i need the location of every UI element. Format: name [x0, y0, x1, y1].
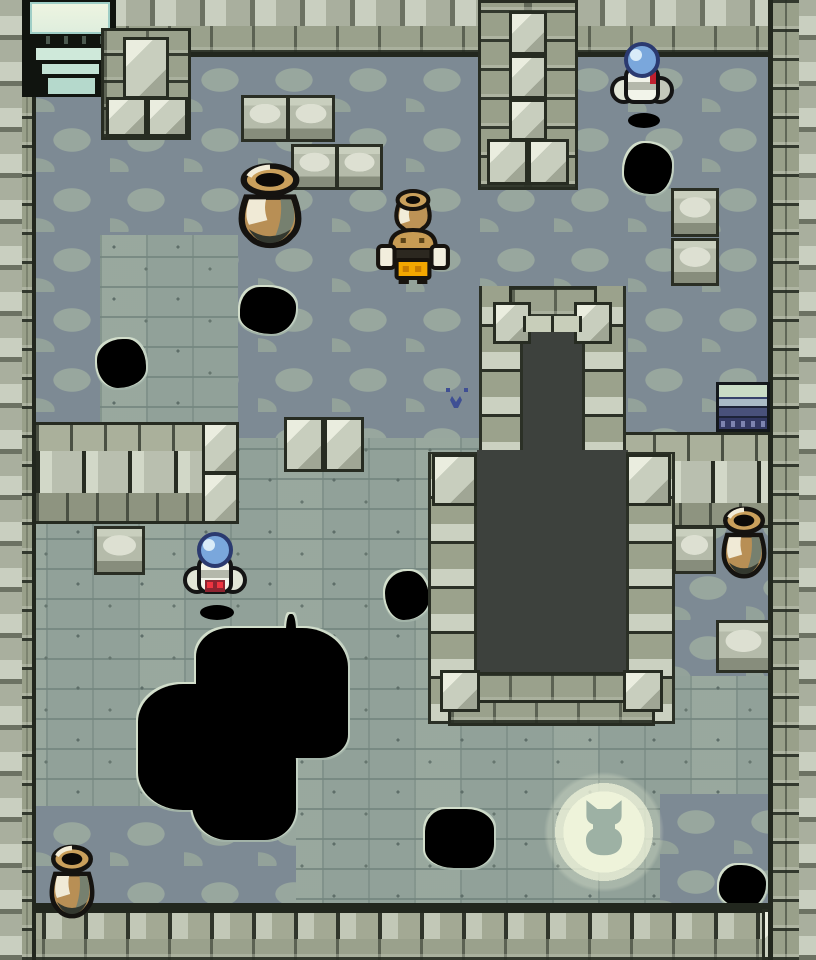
jar[interactable]	[42, 840, 102, 920]
enemy-shadow	[200, 605, 234, 620]
game-viewport	[0, 0, 816, 960]
player-character[interactable]	[374, 184, 452, 284]
wall-end-cap	[202, 422, 239, 474]
wall-bottom	[0, 903, 816, 960]
carved-block	[671, 188, 719, 237]
cat-sigil-icon	[577, 798, 631, 864]
carved-block	[673, 526, 716, 574]
block-pair	[284, 417, 364, 472]
carved-block	[94, 526, 145, 575]
large-floor-hole	[130, 616, 355, 840]
jar[interactable]	[714, 502, 774, 580]
glow-circle	[534, 762, 674, 902]
top-pier	[478, 0, 578, 190]
enemy-orb-robot[interactable]	[610, 42, 674, 128]
enemy-shadow	[628, 113, 660, 128]
stairs-down-tile[interactable]	[716, 382, 770, 432]
wall-left	[0, 0, 36, 960]
floor-hole	[93, 335, 150, 392]
enemy-orb-robot[interactable]	[182, 532, 248, 620]
floor-hole	[236, 283, 300, 338]
entrance-light	[30, 2, 110, 34]
floor-hole	[421, 805, 498, 872]
blue-critter[interactable]	[444, 386, 470, 414]
wall-end-cap	[202, 472, 239, 524]
jar[interactable]	[228, 158, 312, 250]
carved-block	[716, 620, 771, 673]
carved-block	[287, 95, 335, 142]
floor-hole	[620, 139, 676, 198]
wall-mid-left	[33, 422, 205, 524]
walled-pit	[428, 450, 675, 728]
carved-block	[671, 238, 719, 286]
floor-hole	[381, 567, 433, 624]
wall-right	[768, 0, 816, 960]
entrance-pier	[101, 28, 191, 140]
carved-block	[241, 95, 289, 142]
pit-shaft	[479, 286, 626, 462]
